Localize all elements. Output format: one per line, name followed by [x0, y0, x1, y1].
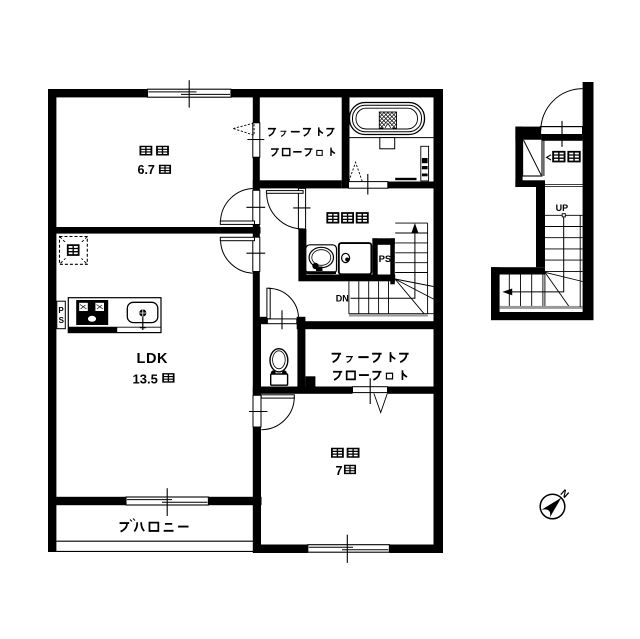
svg-text:13.5: 13.5 [133, 372, 158, 387]
svg-text:P: P [58, 306, 64, 315]
svg-text:LDK: LDK [137, 351, 169, 367]
svg-text:UP: UP [556, 203, 569, 213]
svg-text:7: 7 [336, 464, 343, 478]
svg-text:S: S [59, 316, 65, 325]
svg-text:DN: DN [336, 294, 349, 304]
svg-text:PS: PS [379, 254, 392, 265]
svg-text:6.7: 6.7 [138, 163, 155, 177]
